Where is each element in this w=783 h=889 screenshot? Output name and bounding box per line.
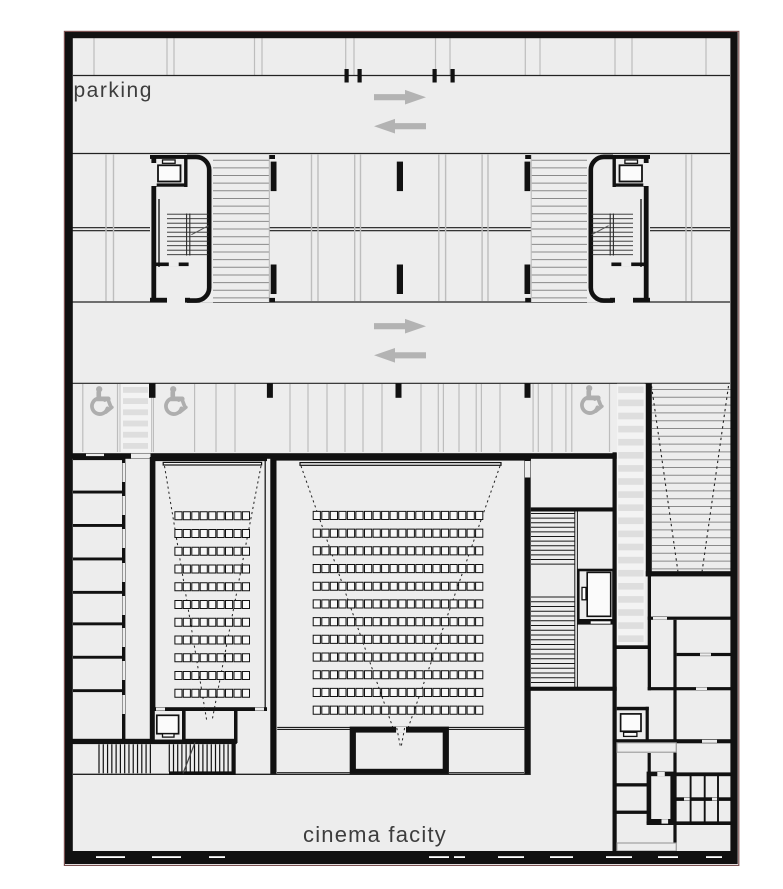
svg-text:parking: parking [74, 79, 153, 102]
svg-text:cinema facity: cinema facity [303, 822, 447, 847]
